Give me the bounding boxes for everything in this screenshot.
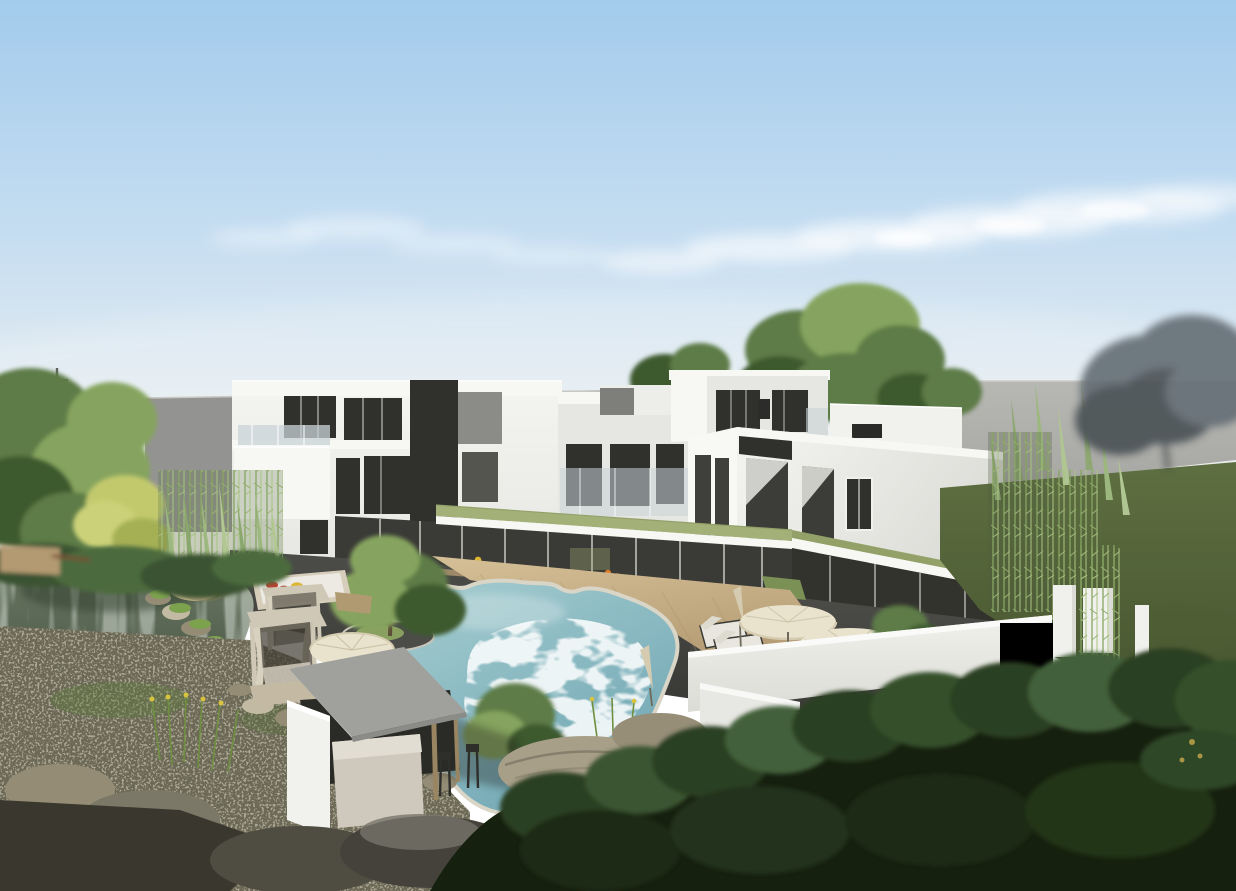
architectural-rendering xyxy=(0,0,1236,891)
pond-deck xyxy=(0,545,60,575)
pillar-bamboo xyxy=(1078,545,1118,665)
slot-window xyxy=(852,424,882,438)
gazebo-wall xyxy=(287,700,330,836)
rendering-canvas xyxy=(0,0,1236,891)
roof-fascia xyxy=(232,381,562,396)
ground-window xyxy=(300,520,328,554)
rooftop-box xyxy=(600,385,673,415)
facade-panel xyxy=(458,392,502,444)
interior-glimpse xyxy=(570,548,610,570)
